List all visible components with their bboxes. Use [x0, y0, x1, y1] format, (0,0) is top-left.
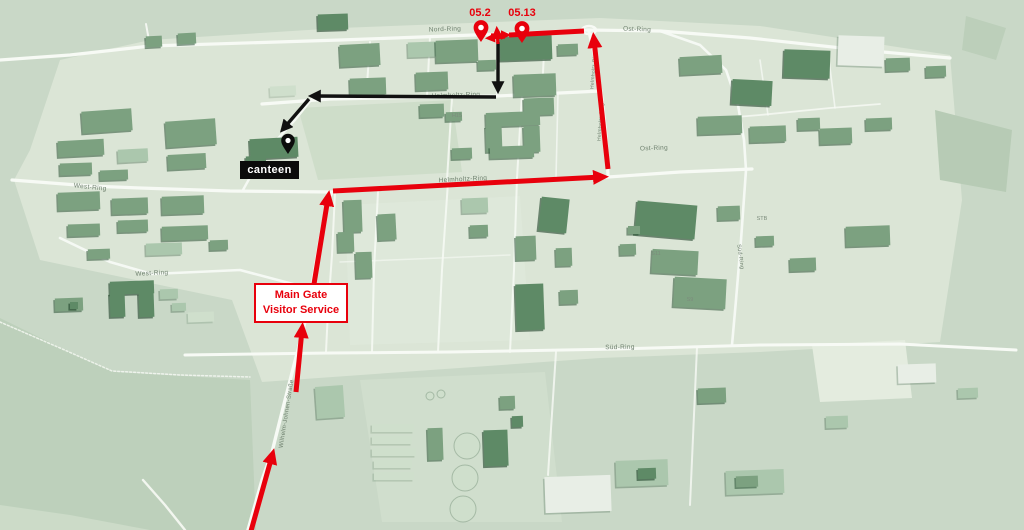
building	[748, 125, 786, 144]
building	[336, 232, 354, 254]
building	[537, 196, 570, 234]
terrain-patch	[0, 318, 256, 530]
main-gate-line1: Main Gate	[256, 288, 346, 303]
building	[144, 36, 162, 50]
building-code-label: H15	[452, 113, 462, 119]
building	[460, 198, 488, 216]
building	[864, 118, 892, 133]
building	[418, 104, 444, 119]
building	[476, 60, 496, 72]
building	[618, 244, 636, 257]
building	[450, 148, 472, 161]
building	[554, 248, 572, 268]
building	[956, 388, 978, 400]
pin-label-05-13: 05.13	[508, 7, 536, 19]
building	[484, 111, 540, 129]
building	[110, 197, 148, 216]
building	[342, 200, 363, 234]
building	[372, 472, 414, 482]
building	[884, 58, 910, 73]
building	[313, 385, 345, 421]
building	[164, 118, 217, 149]
building	[730, 79, 773, 108]
building	[498, 396, 515, 411]
building	[66, 223, 100, 238]
pin-label-05-2: 05.2	[469, 7, 490, 19]
building-code-label: S9	[687, 297, 694, 303]
building	[510, 416, 523, 429]
tank-building	[454, 433, 480, 459]
building	[370, 448, 416, 458]
building	[556, 44, 578, 57]
main-gate-visitor-service-box: Main Gate Visitor Service	[254, 283, 348, 323]
building	[482, 430, 509, 468]
building	[86, 249, 110, 261]
campus-map: Nord-RingOst-RingOst-RingHelmholtz-RingH…	[0, 0, 1024, 530]
building	[137, 293, 154, 319]
building-code-label: S11	[651, 251, 660, 257]
building	[782, 49, 831, 80]
building	[176, 33, 196, 47]
building	[672, 277, 727, 311]
building	[512, 73, 556, 98]
building	[348, 77, 386, 97]
building	[56, 191, 100, 212]
building	[434, 39, 478, 64]
building	[824, 416, 848, 430]
tank-building	[426, 392, 434, 400]
building	[754, 236, 774, 248]
building	[543, 475, 612, 515]
building	[80, 108, 133, 135]
street-label: Süd-Ring	[605, 344, 635, 352]
building	[208, 240, 228, 252]
building	[268, 85, 296, 98]
building	[626, 226, 640, 236]
building	[414, 71, 448, 92]
building	[924, 66, 946, 79]
building	[836, 35, 885, 68]
building	[116, 219, 148, 234]
street-label: Ost-Ring	[640, 145, 668, 153]
building	[376, 214, 397, 243]
building	[426, 428, 444, 462]
road	[690, 347, 697, 505]
building-code-label: STB	[757, 216, 768, 222]
building	[98, 170, 128, 183]
building	[734, 476, 758, 489]
canteen-label-box: canteen	[240, 161, 299, 179]
building	[406, 42, 436, 60]
building	[186, 312, 214, 325]
building	[160, 225, 208, 242]
building	[844, 225, 890, 248]
visitor-route-segment	[497, 31, 498, 44]
building	[53, 298, 83, 314]
tank-building	[452, 465, 478, 491]
building	[170, 303, 186, 313]
building	[636, 468, 656, 481]
building	[488, 145, 534, 160]
building	[370, 424, 414, 434]
building	[370, 436, 412, 446]
building	[108, 293, 125, 319]
building	[372, 460, 412, 470]
building	[116, 148, 148, 164]
building	[716, 206, 740, 222]
building	[158, 289, 178, 301]
building	[56, 139, 104, 159]
building	[896, 363, 936, 385]
building	[166, 153, 206, 172]
building	[558, 290, 578, 306]
terrain-patch	[935, 110, 1012, 192]
building	[160, 195, 204, 216]
building	[633, 200, 697, 241]
building	[498, 35, 552, 62]
terrain-patch	[962, 16, 1006, 60]
street-label: Nord-Ring	[429, 25, 462, 33]
building	[514, 284, 545, 333]
street-label: Ost-Ring	[623, 26, 651, 34]
building	[796, 118, 820, 132]
building	[354, 252, 373, 280]
tank-building	[450, 496, 476, 522]
building	[338, 43, 381, 69]
building	[468, 225, 488, 239]
building	[316, 13, 348, 32]
canteen-route-segment	[314, 96, 496, 97]
building	[58, 162, 92, 177]
building	[788, 258, 816, 274]
building	[144, 242, 182, 257]
main-gate-line2: Visitor Service	[256, 303, 346, 318]
building	[696, 115, 742, 136]
building	[678, 55, 723, 77]
building	[696, 388, 726, 406]
building	[514, 236, 536, 262]
map-canvas: Nord-RingOst-RingOst-RingHelmholtz-RingH…	[0, 0, 1024, 530]
building	[818, 127, 852, 146]
tank-building	[437, 390, 445, 398]
